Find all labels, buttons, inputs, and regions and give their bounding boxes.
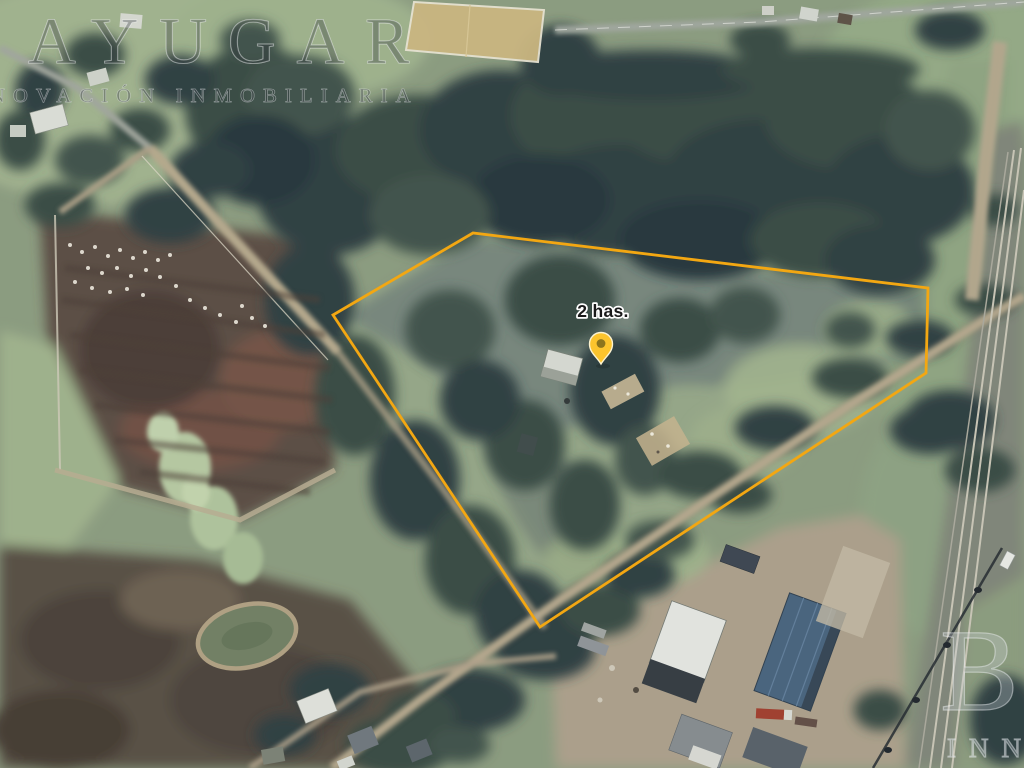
atmospheric-haze (0, 0, 1024, 768)
aerial-photo: 2 has. AYUGAR INNOVACIÓN INMOBILIARIA B … (0, 0, 1024, 768)
satellite-map-image: 2 has. AYUGAR INNOVACIÓN INMOBILIARIA B … (0, 0, 1024, 768)
watermark-corner-letter: B (940, 605, 1019, 736)
watermark-brand: AYUGAR (28, 5, 430, 78)
watermark-corner-text: INN (947, 733, 1024, 763)
watermark-subtitle: INNOVACIÓN INMOBILIARIA (0, 83, 419, 107)
pin-center-dot (597, 339, 606, 348)
area-label: 2 has. (577, 301, 628, 321)
pin-shadow (596, 364, 610, 369)
